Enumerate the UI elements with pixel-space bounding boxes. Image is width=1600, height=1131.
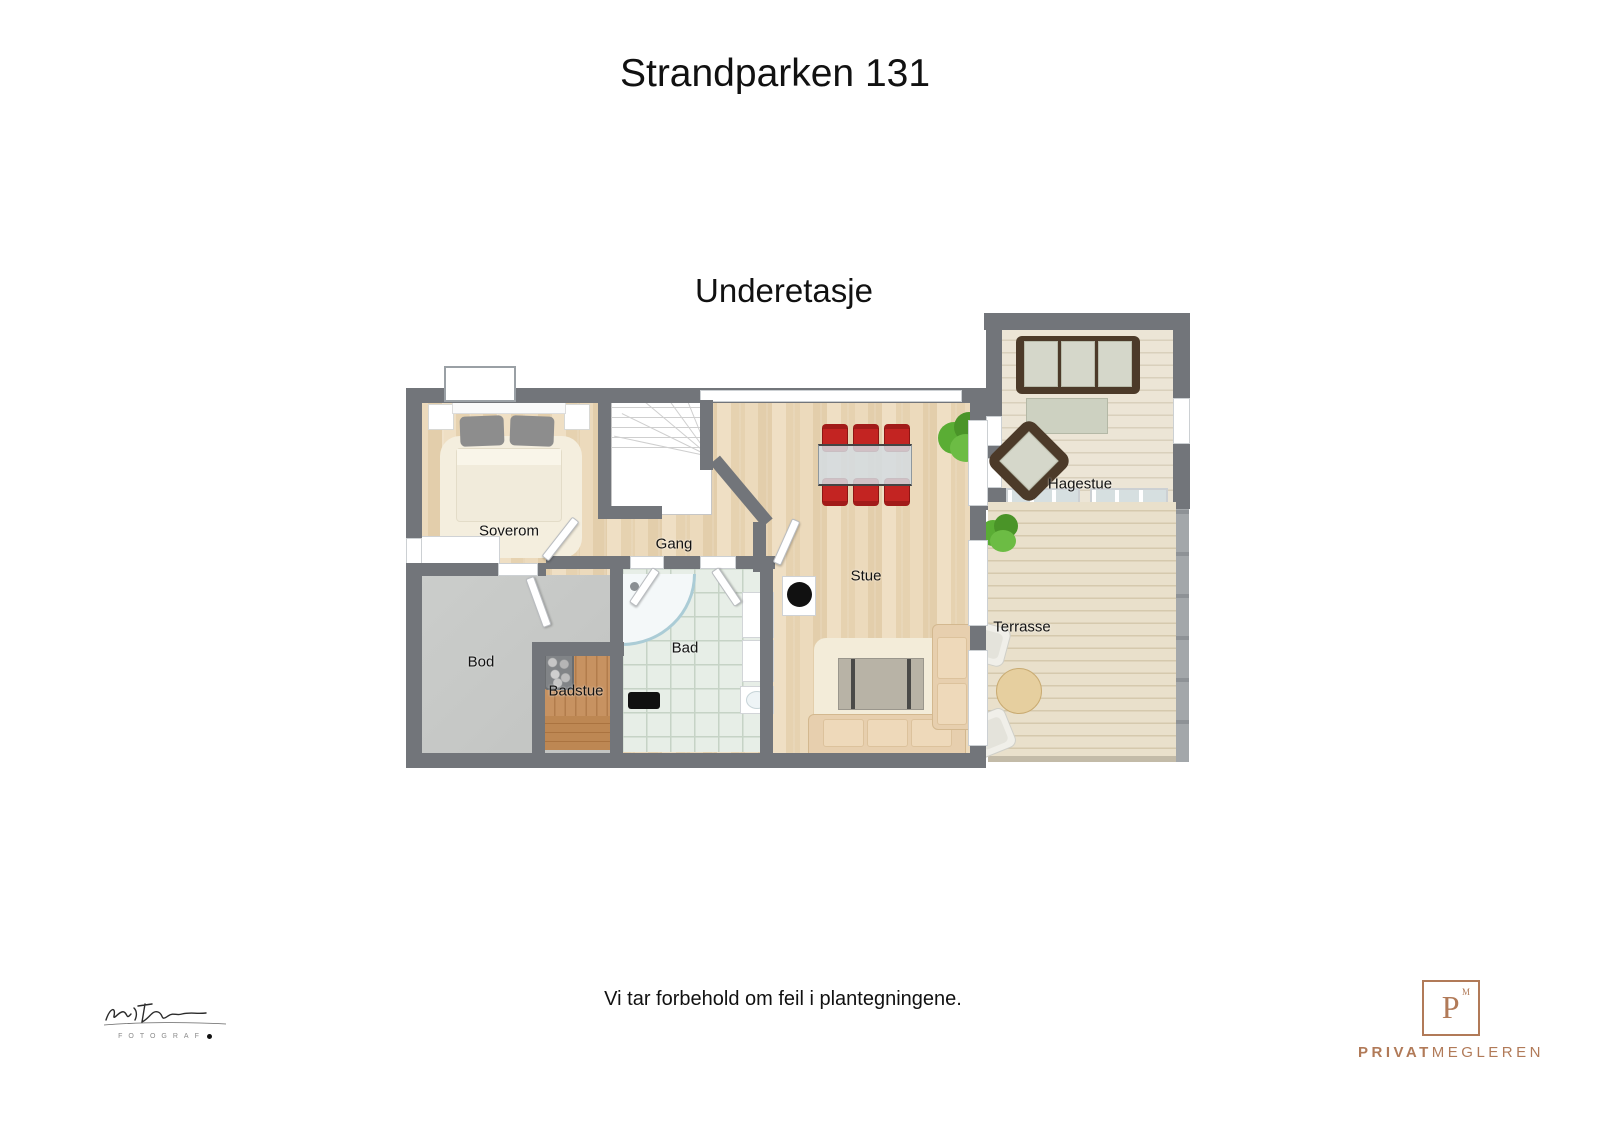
wall <box>984 313 1190 330</box>
wall-stairs-left <box>598 400 611 518</box>
sofa-cushion <box>1098 341 1132 387</box>
photographer-signature <box>100 1000 230 1030</box>
wall-stairs-bottom <box>598 506 662 519</box>
wall-badstue-left <box>532 642 545 755</box>
pillow <box>509 415 554 447</box>
bed <box>452 402 566 522</box>
photographer-label-text: FOTOGRAF <box>118 1033 205 1040</box>
pillow <box>459 415 504 447</box>
sofa-cushion <box>1061 341 1095 387</box>
terrace-door <box>968 650 988 746</box>
wall-soverom-bottom <box>546 556 612 569</box>
window-band <box>700 390 962 402</box>
sofa-cushion <box>937 683 967 725</box>
nightstand <box>428 404 454 430</box>
privatmegleren-logo: P M PRIVATMEGLEREN <box>1341 980 1561 1061</box>
sofa-cushion <box>1024 341 1058 387</box>
wall-badstue-top <box>532 642 624 656</box>
sofa-cushion <box>823 719 864 747</box>
wall-bottom <box>406 753 986 768</box>
room-label-soverom: Soverom <box>479 523 539 540</box>
badstue-bench <box>533 716 615 750</box>
floorplan-page: Strandparken 131 Underetasje <box>0 0 1600 1131</box>
table-stripe <box>907 659 911 709</box>
bed-headboard <box>452 402 566 414</box>
floor-title: Underetasje <box>695 272 873 310</box>
privatmegleren-wordmark: PRIVATMEGLEREN <box>1358 1044 1544 1061</box>
wall-stairs-right <box>700 400 713 470</box>
closet-niche <box>444 366 516 402</box>
emblem-letter: P <box>1442 989 1460 1026</box>
wall <box>986 330 1002 416</box>
wicker-sofa <box>1016 336 1140 394</box>
nightstand <box>564 404 590 430</box>
emblem-mark: M <box>1462 987 1470 997</box>
deck-railing <box>1176 509 1189 762</box>
wordmark-light: MEGLEREN <box>1432 1044 1544 1061</box>
bath-mat <box>628 692 660 709</box>
dot-icon <box>207 1034 212 1039</box>
wordmark-bold: PRIVAT <box>1358 1044 1432 1061</box>
window <box>986 416 1002 446</box>
privatmegleren-emblem: P M <box>1422 980 1480 1036</box>
door-opening <box>630 556 664 569</box>
coffee-table <box>838 658 924 710</box>
wood-stove <box>782 576 816 616</box>
dining-table <box>818 444 912 486</box>
room-label-terrasse: Terrasse <box>993 619 1051 636</box>
room-label-gang: Gang <box>656 536 693 553</box>
photographer-logo: FOTOGRAF <box>95 1000 235 1040</box>
room-label-hagestue: Hagestue <box>1048 476 1112 493</box>
sofa-cushion <box>867 719 908 747</box>
terrace-table <box>996 668 1042 714</box>
terrace-door <box>968 420 988 506</box>
plant-foliage <box>990 530 1016 552</box>
stair-treads <box>612 398 711 456</box>
room-label-bad: Bad <box>672 640 699 657</box>
room-label-bod: Bod <box>468 654 495 671</box>
duvet <box>456 448 562 522</box>
window <box>1173 398 1190 444</box>
deck-edge <box>988 756 1176 762</box>
duvet-fold <box>457 449 561 465</box>
page-title: Strandparken 131 <box>620 52 930 96</box>
terrace-door <box>968 540 988 626</box>
staircase <box>611 397 712 515</box>
door-opening <box>498 563 538 576</box>
disclaimer-text: Vi tar forbehold om feil i plantegningen… <box>604 988 962 1011</box>
stove-top <box>787 582 812 607</box>
wall-left <box>406 388 422 768</box>
photographer-label: FOTOGRAF <box>95 1033 235 1040</box>
sofa-cushion <box>937 637 967 679</box>
room-label-stue: Stue <box>851 568 882 585</box>
room-label-badstue: Badstue <box>548 683 603 700</box>
wall-bad-right <box>760 556 773 753</box>
table-stripe <box>851 659 855 709</box>
